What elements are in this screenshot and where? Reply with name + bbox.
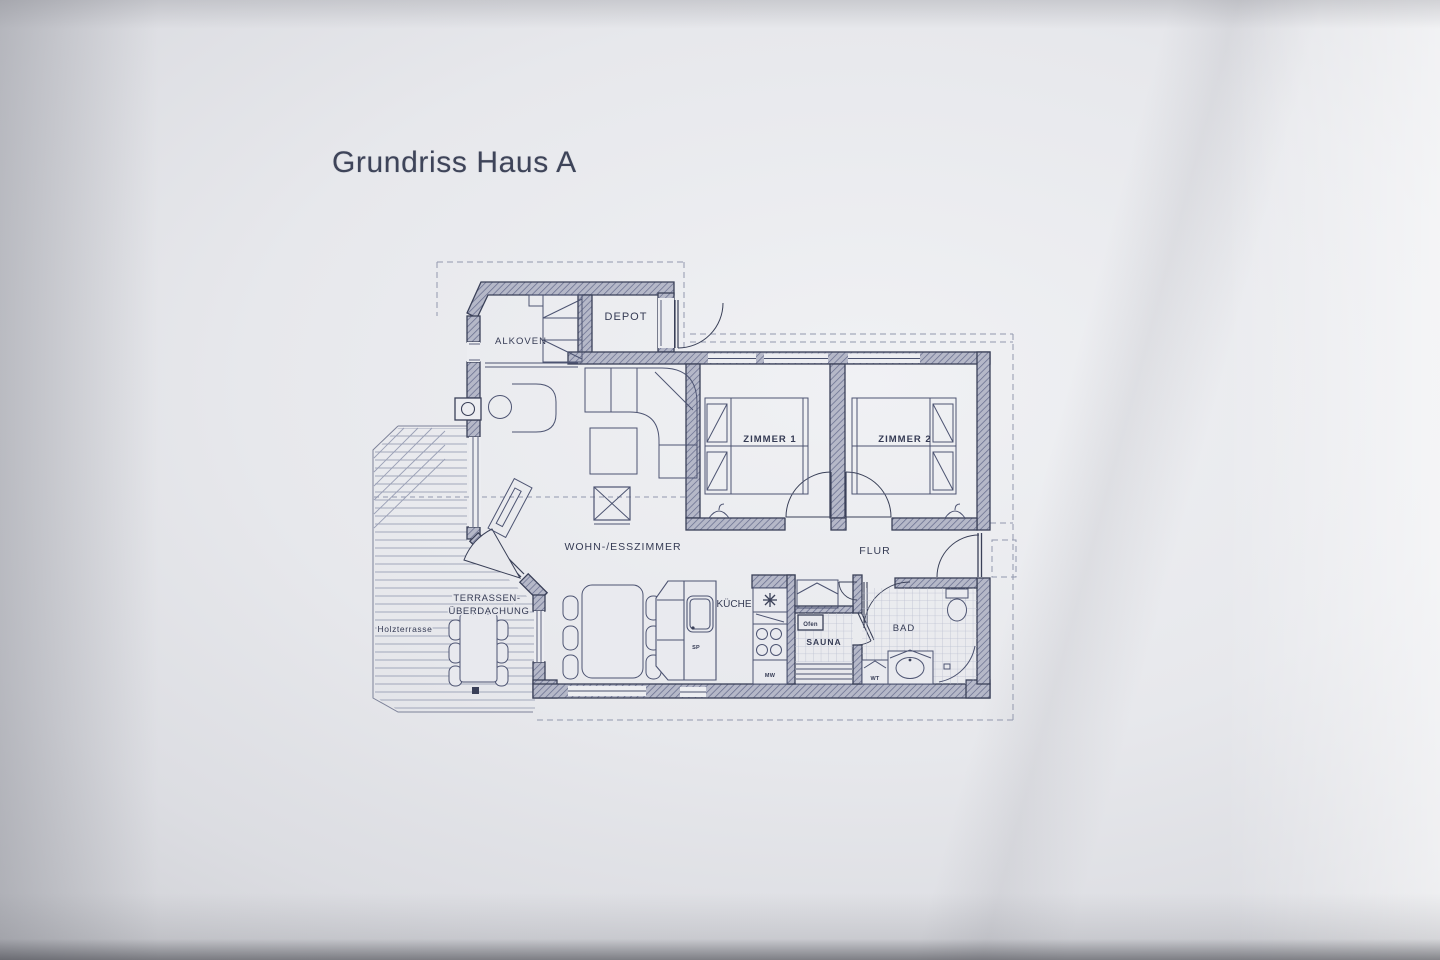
kitchen-counter <box>753 588 787 684</box>
depot-door <box>675 300 723 348</box>
label-mw: MW <box>765 673 776 679</box>
label-zimmer2: ZIMMER 2 <box>878 434 931 445</box>
zimmer1-furniture <box>705 398 808 518</box>
living-room-furniture <box>488 368 697 537</box>
label-wt: WT <box>871 676 880 682</box>
photographed-floorplan-page: Grundriss Haus A <box>0 0 1440 960</box>
coat-hook <box>945 504 965 518</box>
kitchen-island <box>656 581 716 680</box>
coat-hook <box>709 504 729 518</box>
dining-set <box>563 585 661 679</box>
label-terrasse-1: TERRASSEN- <box>453 593 520 604</box>
terrace-post <box>472 687 479 694</box>
label-sauna: SAUNA <box>806 637 841 647</box>
label-sp: SP <box>692 645 700 651</box>
hall-closet <box>797 580 838 608</box>
label-depot: DEPOT <box>605 311 648 323</box>
label-kueche: KÜCHE <box>716 598 751 610</box>
zimmer2-furniture <box>852 398 965 518</box>
entry-door <box>937 533 982 577</box>
label-wohn: WOHN-/ESSZIMMER <box>564 541 681 553</box>
washbasin <box>888 650 933 684</box>
toilet <box>946 589 968 621</box>
label-terrasse-2: ÜBERDACHUNG <box>448 606 529 617</box>
label-bad: BAD <box>893 623 916 634</box>
label-ofen: Ofen <box>803 622 818 628</box>
wood-stove <box>594 487 630 524</box>
label-alkoven: ALKOVEN <box>495 336 547 347</box>
light-symbol <box>763 593 777 607</box>
label-holzterrasse: Holzterrasse <box>378 624 433 634</box>
label-flur: FLUR <box>859 545 890 557</box>
floor-plan-drawing: ALKOVEN DEPOT ZIMMER 1 ZIMMER 2 WOHN-/ES… <box>0 0 1440 960</box>
terrace-dining-set <box>449 614 508 686</box>
flue-box <box>455 398 481 420</box>
label-zimmer1: ZIMMER 1 <box>743 434 796 445</box>
